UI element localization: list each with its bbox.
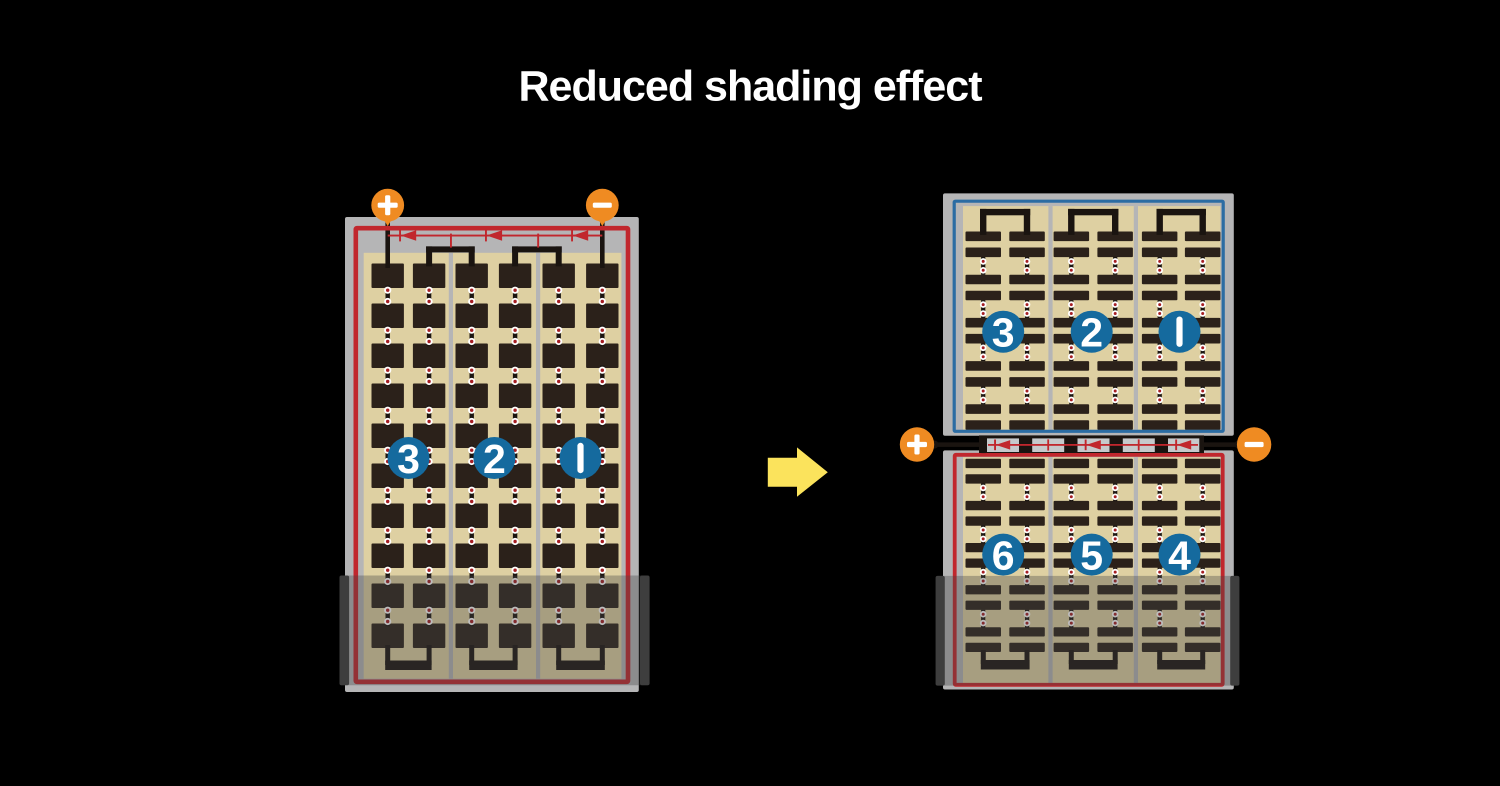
svg-text:3: 3 xyxy=(992,310,1015,356)
svg-text:2: 2 xyxy=(483,436,506,482)
svg-text:2: 2 xyxy=(1080,310,1103,356)
svg-text:4: 4 xyxy=(1168,533,1191,579)
svg-text:5: 5 xyxy=(1080,533,1103,579)
svg-text:Reduced shading effect: Reduced shading effect xyxy=(518,63,982,111)
svg-text:6: 6 xyxy=(992,533,1015,579)
svg-text:3: 3 xyxy=(397,436,420,482)
